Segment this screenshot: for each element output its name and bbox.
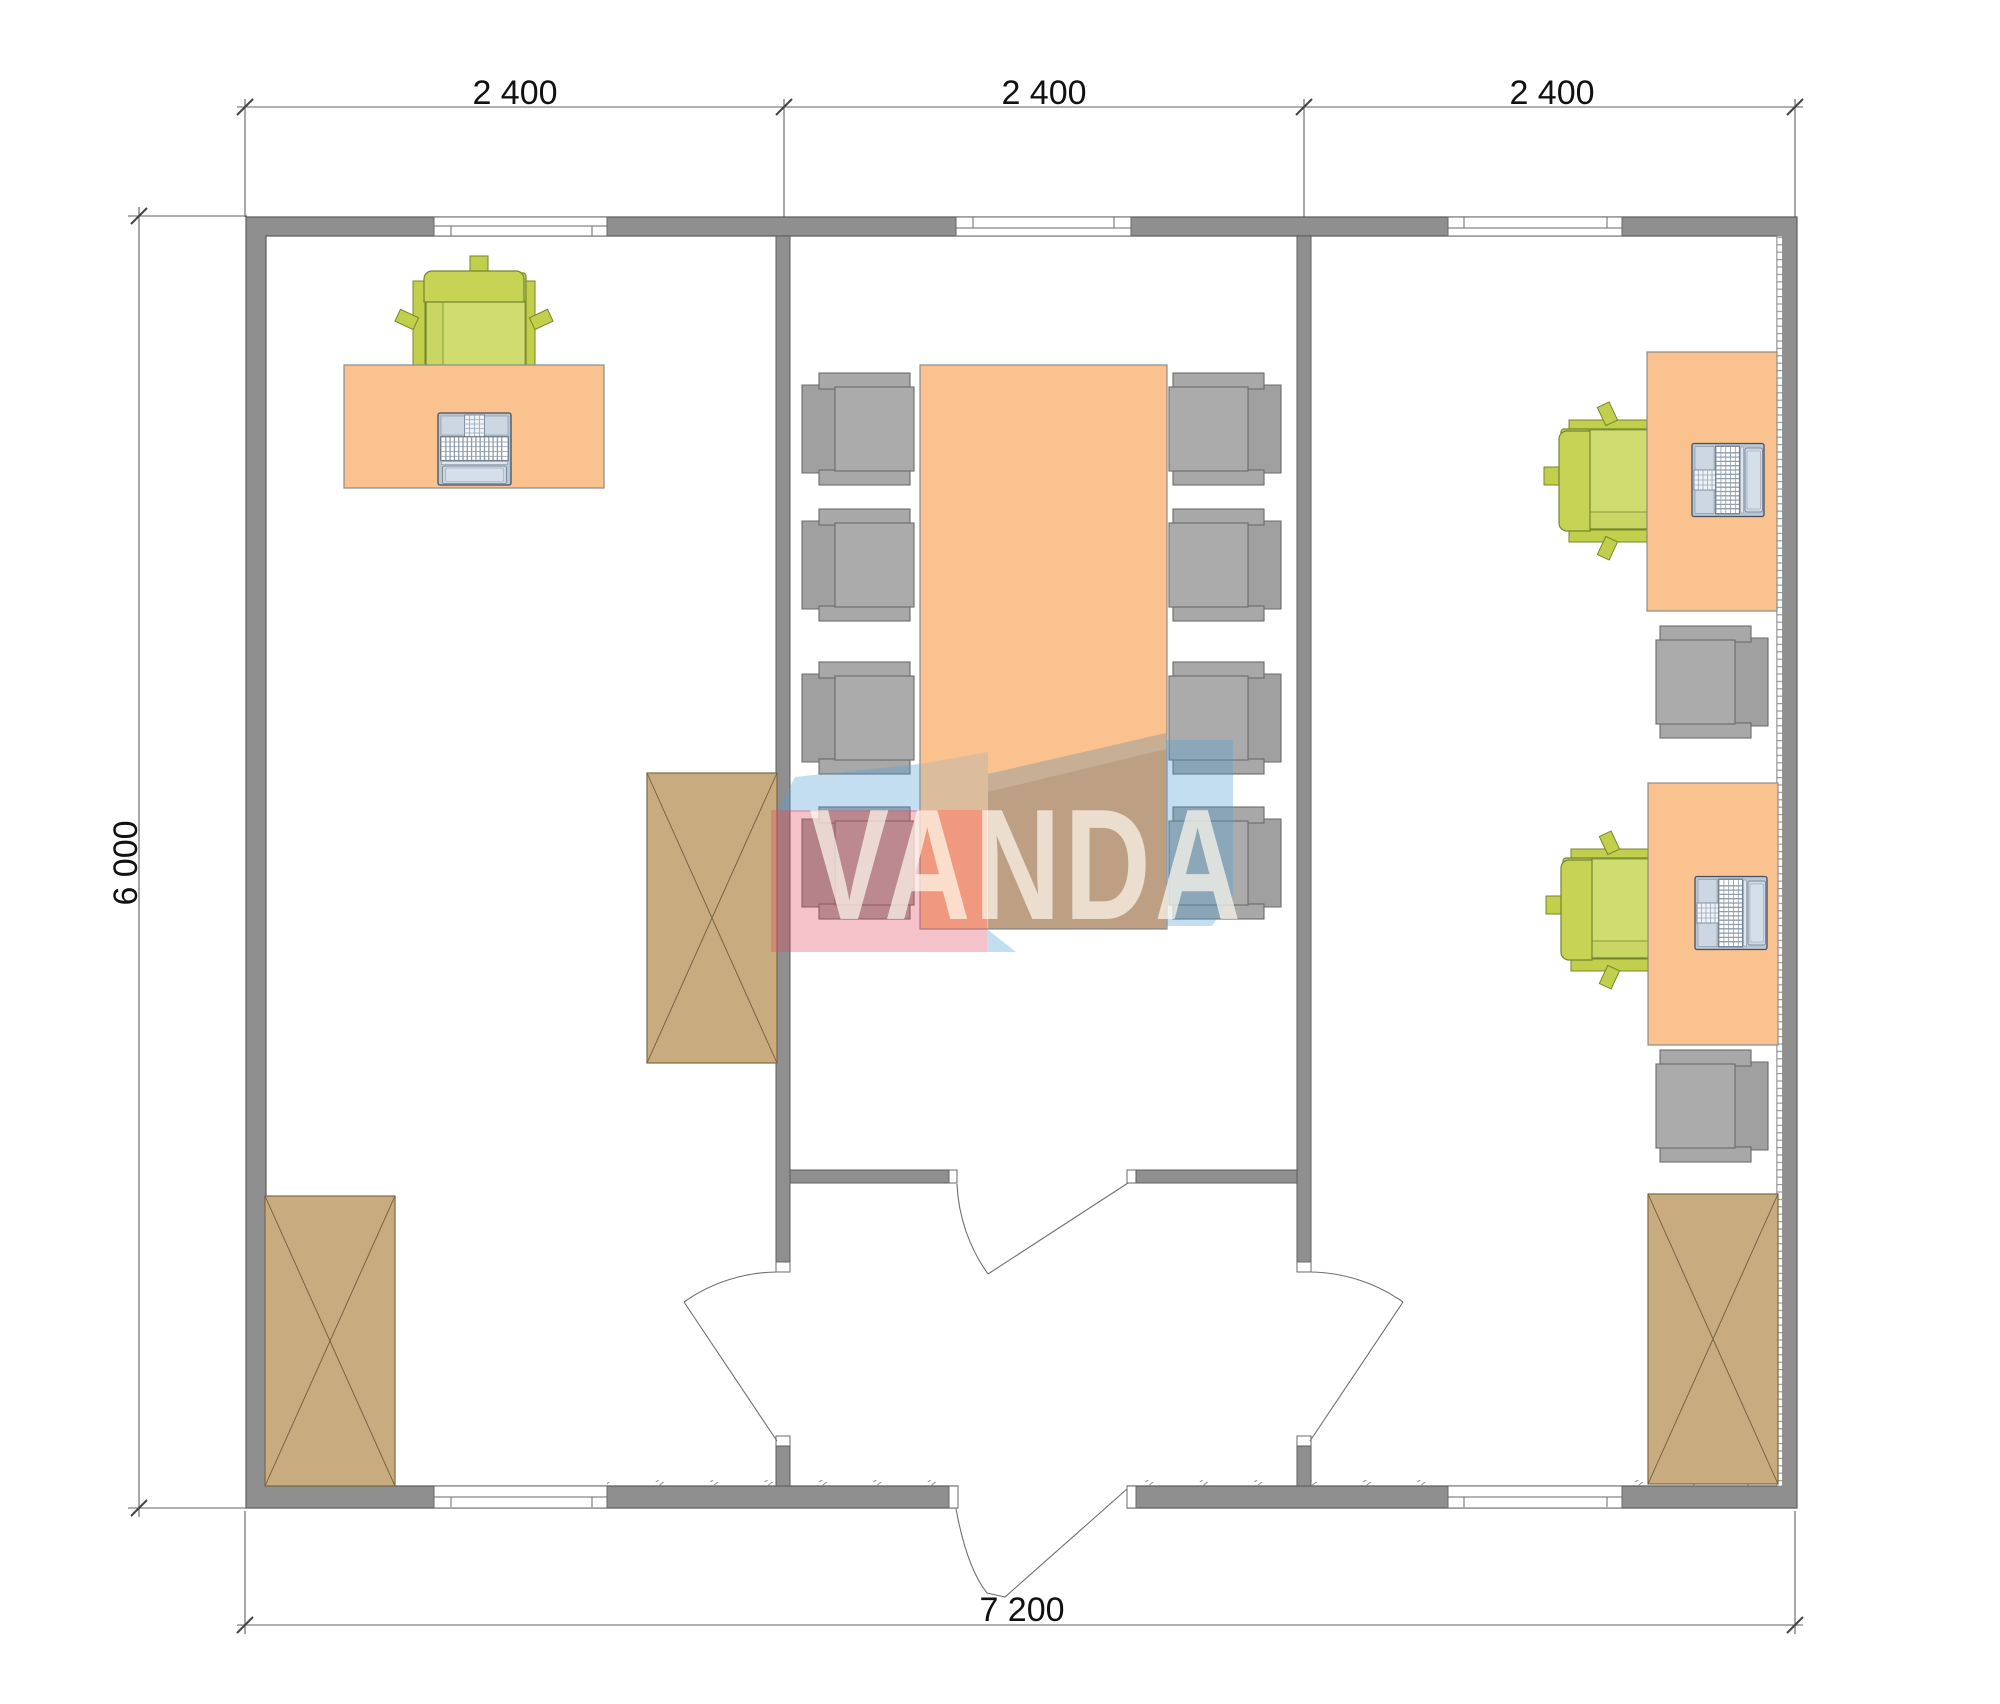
svg-text:2 400: 2 400 [472,74,557,112]
svg-text:7 200: 7 200 [979,1591,1064,1629]
svg-text:VANDA: VANDA [809,776,1244,953]
svg-text:2 400: 2 400 [1509,74,1594,112]
svg-text:2 400: 2 400 [1001,74,1086,112]
svg-text:6 000: 6 000 [107,820,145,905]
